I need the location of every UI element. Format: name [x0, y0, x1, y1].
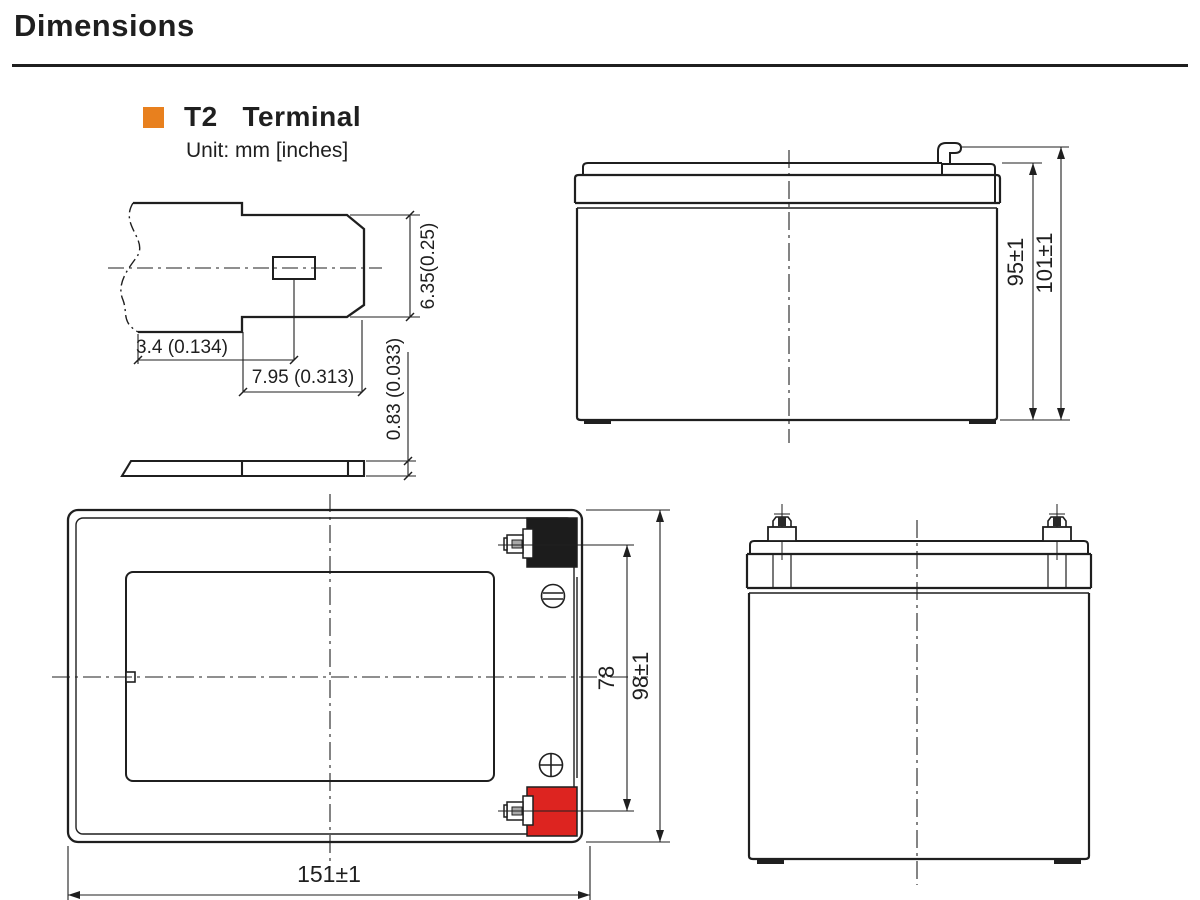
- battery-top-view: 78 98±1 151±1: [52, 494, 670, 900]
- top-inner-offset-outline: [76, 518, 574, 834]
- dim-label-hole-to-tip: 7.95 (0.313): [252, 367, 354, 388]
- battery-side-view: 95±1 101±1: [575, 143, 1070, 443]
- side-terminal-hook: [938, 143, 961, 164]
- dimension-drawing: 3.4 (0.134) 7.95 (0.313) 6.35(0.25) 0.83…: [0, 0, 1200, 900]
- side-foot-right: [969, 420, 996, 424]
- terminal-slot: [778, 517, 786, 526]
- side-foot-left: [584, 420, 611, 424]
- vent-screw-cross-icon: [540, 754, 563, 777]
- dim-label-thickness: 0.83 (0.033): [384, 338, 405, 440]
- dim-label-terminal-pitch: 78: [594, 666, 619, 690]
- side-body-outline: [577, 208, 997, 420]
- top-outer-outline: [68, 510, 582, 842]
- front-terminal-left: [768, 504, 796, 560]
- front-body-outline: [749, 593, 1089, 859]
- front-top-strip: [750, 541, 1088, 554]
- dim-label-container-height: 95±1: [1003, 238, 1028, 287]
- dim-label-hole-offset: 3.4 (0.134): [136, 337, 228, 358]
- dim-label-length: 151±1: [297, 861, 361, 887]
- vent-screw-slot-icon: [542, 585, 565, 608]
- dim-label-total-height: 101±1: [1032, 232, 1057, 293]
- front-foot-right: [1054, 859, 1081, 864]
- terminal-base-block: [1043, 527, 1071, 541]
- front-terminal-right: [1043, 504, 1071, 560]
- battery-front-view: [747, 504, 1091, 885]
- faston-tab-icon: [504, 529, 533, 558]
- side-lid-outline: [575, 175, 1000, 203]
- terminal-detail-view: 3.4 (0.134) 7.95 (0.313) 6.35(0.25) 0.83…: [108, 203, 439, 480]
- dim-label-tab-width: 6.35(0.25): [418, 223, 439, 310]
- negative-terminal: [504, 518, 577, 567]
- terminal-slot: [1053, 517, 1061, 526]
- dim-label-width: 98±1: [628, 652, 653, 701]
- front-lid-outline: [747, 554, 1091, 588]
- front-terminal-wells: [773, 554, 1066, 588]
- terminal-base-block: [768, 527, 796, 541]
- terminal-plate-top-view: [122, 461, 364, 476]
- negative-terminal-block: [527, 518, 577, 567]
- front-foot-left: [757, 859, 784, 864]
